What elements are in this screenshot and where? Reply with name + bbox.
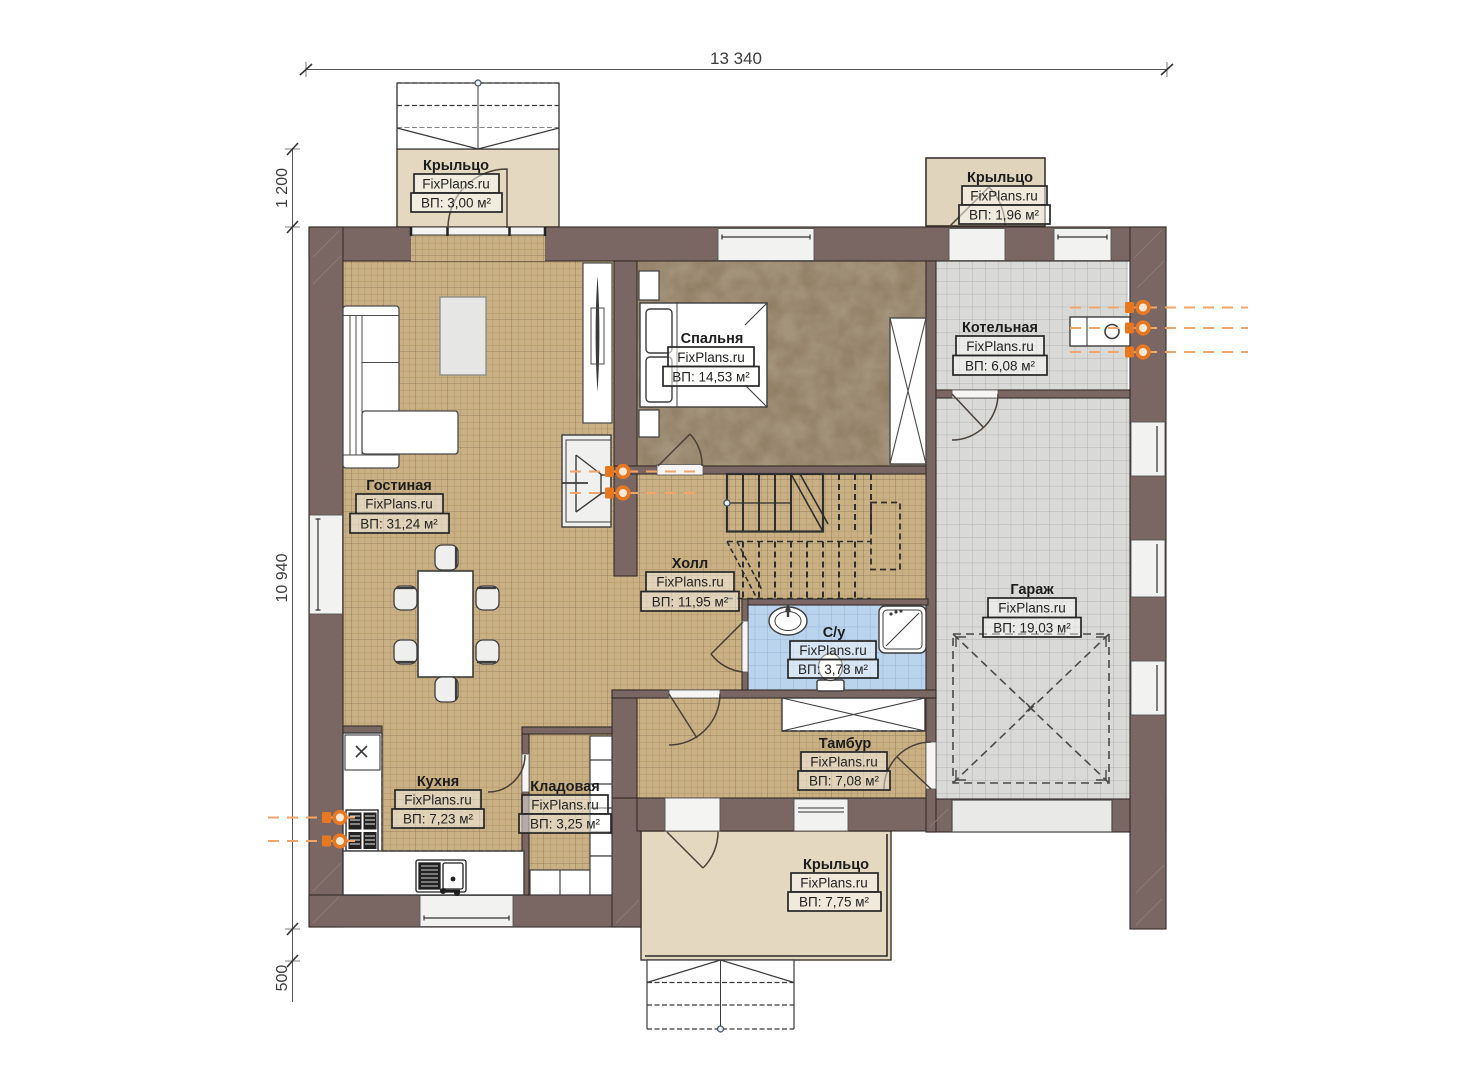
svg-text:FixPlans.ru: FixPlans.ru [810,755,878,770]
svg-text:ВП: 7,75 м²: ВП: 7,75 м² [799,895,870,910]
svg-text:ВП: 7,23 м²: ВП: 7,23 м² [403,812,474,827]
svg-text:FixPlans.ru: FixPlans.ru [970,189,1038,204]
svg-text:Котельная: Котельная [962,320,1038,336]
svg-text:FixPlans.ru: FixPlans.ru [656,575,724,590]
svg-text:Холл: Холл [672,556,708,572]
svg-text:ВП: 31,24 м²: ВП: 31,24 м² [360,517,438,532]
svg-text:FixPlans.ru: FixPlans.ru [422,177,490,192]
svg-text:ВП: 11,95 м²: ВП: 11,95 м² [652,595,729,610]
svg-text:500: 500 [274,965,291,992]
svg-text:ВП: 6,08 м²: ВП: 6,08 м² [965,359,1036,374]
svg-text:Тамбур: Тамбур [819,736,872,752]
svg-text:FixPlans.ru: FixPlans.ru [799,643,867,658]
svg-text:ВП: 19,03 м²: ВП: 19,03 м² [993,621,1071,636]
svg-text:Крыльцо: Крыльцо [423,158,489,174]
svg-text:Крыльцо: Крыльцо [803,857,869,873]
svg-text:С/у: С/у [823,625,846,641]
svg-text:Гараж: Гараж [1010,582,1054,598]
svg-text:13 340: 13 340 [710,49,762,68]
svg-text:ВП: 3,00 м²: ВП: 3,00 м² [421,196,492,211]
svg-text:Кухня: Кухня [417,774,459,790]
svg-text:Гостиная: Гостиная [366,478,432,494]
svg-text:FixPlans.ru: FixPlans.ru [531,798,599,813]
svg-text:Кладовая: Кладовая [530,779,599,795]
svg-text:ВП: 3,78 м²: ВП: 3,78 м² [798,662,869,677]
svg-text:FixPlans.ru: FixPlans.ru [365,497,433,512]
svg-text:FixPlans.ru: FixPlans.ru [998,601,1066,616]
svg-text:Спальня: Спальня [681,331,744,347]
svg-text:1 200: 1 200 [274,168,291,208]
svg-text:Крыльцо: Крыльцо [967,170,1033,186]
svg-text:FixPlans.ru: FixPlans.ru [404,793,472,808]
svg-text:10 940: 10 940 [274,553,291,602]
svg-text:ВП: 7,08 м²: ВП: 7,08 м² [809,774,880,789]
svg-text:FixPlans.ru: FixPlans.ru [677,350,745,365]
svg-text:ВП: 14,53 м²: ВП: 14,53 м² [672,370,750,385]
svg-text:ВП: 1,96 м²: ВП: 1,96 м² [969,208,1040,223]
svg-text:ВП: 3,25 м²: ВП: 3,25 м² [530,817,601,832]
svg-text:FixPlans.ru: FixPlans.ru [966,339,1034,354]
svg-text:FixPlans.ru: FixPlans.ru [800,876,868,891]
